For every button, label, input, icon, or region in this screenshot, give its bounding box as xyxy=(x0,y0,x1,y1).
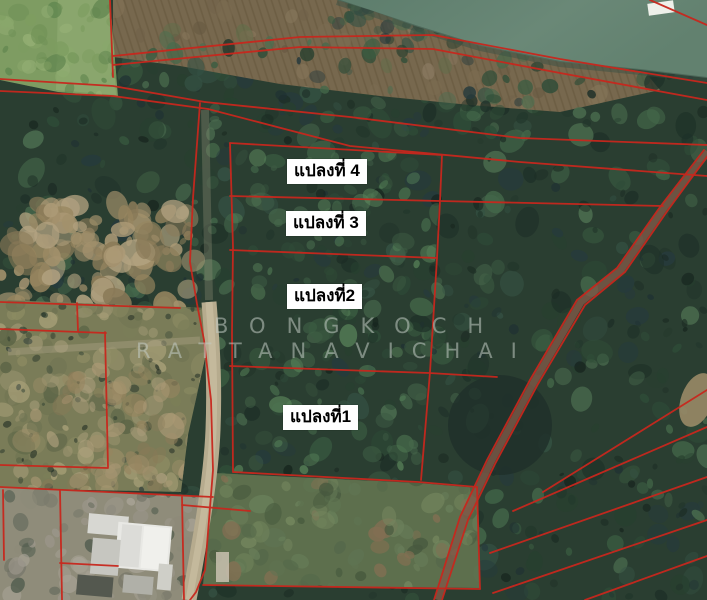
watermark-line-1: BONGKOCH xyxy=(214,314,504,338)
plot-label-1: แปลงที่1 xyxy=(283,405,358,430)
plot-label-3: แปลงที่ 3 xyxy=(286,211,366,236)
dark-vegetation-patch xyxy=(448,375,552,475)
satellite-map: แปลงที่ 4 แปลงที่ 3 แปลงที่2 แปลงที่1 BO… xyxy=(0,0,707,600)
watermark-line-2: RATTANAVICHAI xyxy=(136,339,535,363)
plot-label-2: แปลงที่2 xyxy=(287,284,362,309)
plot-label-4: แปลงที่ 4 xyxy=(287,159,367,184)
